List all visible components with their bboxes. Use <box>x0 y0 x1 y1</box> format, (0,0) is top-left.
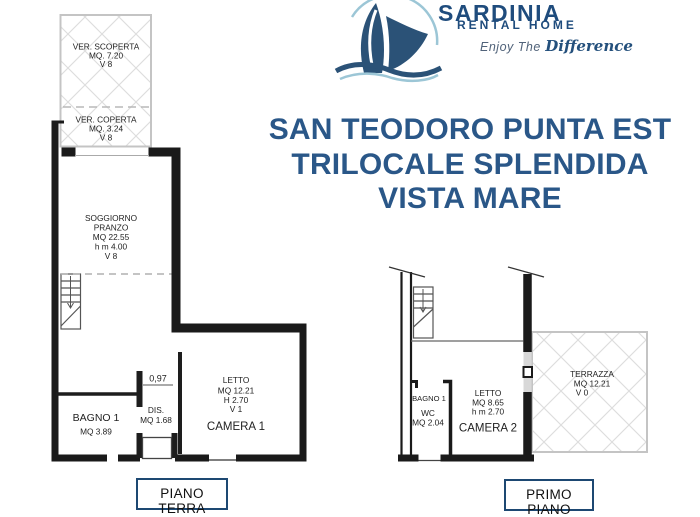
tagline-script-text: Difference <box>545 37 633 55</box>
brand-logo: SARDINIA RENTAL HOME Enjoy The Differenc… <box>330 0 620 92</box>
soggiorno-h: h m 4.00 <box>95 242 128 252</box>
wc-area: MQ 2.04 <box>412 418 444 428</box>
terrazza-area <box>532 332 647 452</box>
ground-floor-plan: 0,97 VER. SCOPERTA MQ. 7.20 V 8 VER. COP… <box>52 15 307 462</box>
dis-area: MQ 1.68 <box>140 415 172 425</box>
dis-name: DIS. <box>148 405 164 415</box>
camera1-v: V 1 <box>230 404 243 414</box>
camera1-name: CAMERA 1 <box>207 421 265 433</box>
soggiorno-area: MQ 22.55 <box>93 232 130 242</box>
title-line-3: VISTA MARE <box>240 182 700 217</box>
brand-subtitle: RENTAL HOME <box>457 18 577 32</box>
french-door-symbol-lower <box>524 377 532 392</box>
bagno1-ff-name: BAGNO 1 <box>412 394 446 403</box>
soggiorno-name1: SOGGIORNO <box>85 213 138 223</box>
listing-title: SAN TEODORO PUNTA EST TRILOCALE SPLENDID… <box>240 113 700 217</box>
camera1-area: MQ 12.21 <box>218 386 255 396</box>
stairs-symbol <box>61 274 81 329</box>
wc-name: WC <box>421 408 435 418</box>
entrance-door-symbol <box>143 438 172 459</box>
title-line-1: SAN TEODORO PUNTA EST <box>240 113 700 148</box>
camera2-h: h m 2.70 <box>472 407 505 417</box>
dimension-value: 0,97 <box>149 374 167 384</box>
tagline-text: Enjoy The <box>480 40 541 54</box>
terrazza-v: V 0 <box>576 388 589 398</box>
camera2-letto: LETTO <box>475 388 502 398</box>
bagno1-name: BAGNO 1 <box>73 412 120 424</box>
camera2-name: CAMERA 2 <box>459 423 517 435</box>
first-floor-plan: BAGNO 1 WC MQ 2.04 LETTO MQ 8.65 h m 2.7… <box>389 267 647 462</box>
french-door-symbol-upper <box>524 352 532 367</box>
sailboat-logo-icon <box>334 0 444 84</box>
soggiorno-v: V 8 <box>105 251 118 261</box>
stairs-symbol-first-floor <box>414 287 434 338</box>
camera1-letto: LETTO <box>223 375 250 385</box>
ver-coperta-v: V 8 <box>100 133 113 143</box>
ver-scoperta-v: V 8 <box>100 59 113 69</box>
window-symbol <box>524 367 533 377</box>
first-floor-label: PRIMO PIANO <box>504 479 594 511</box>
soggiorno-name2: PRANZO <box>94 223 129 233</box>
brand-tagline: Enjoy The Difference <box>480 37 633 56</box>
bagno1-area: MQ 3.89 <box>80 427 112 437</box>
ground-floor-label: PIANO TERRA <box>136 478 228 510</box>
terrazza-name: TERRAZZA <box>570 369 614 379</box>
wall-break-mark-left <box>389 267 425 277</box>
flyer-page: 0,97 VER. SCOPERTA MQ. 7.20 V 8 VER. COP… <box>0 0 700 500</box>
title-line-2: TRILOCALE SPLENDIDA <box>240 148 700 183</box>
